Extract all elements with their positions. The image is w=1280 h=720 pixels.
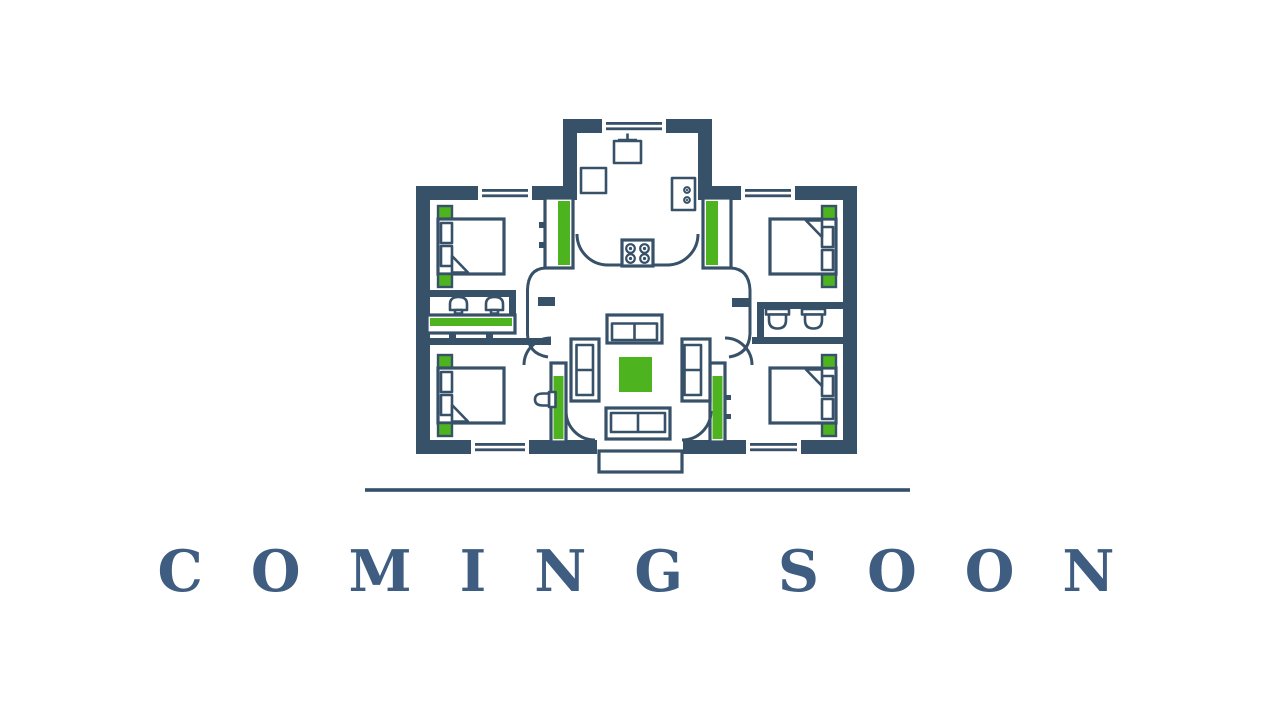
bed-bottom-left	[438, 355, 504, 436]
bed-bottom-right	[770, 355, 836, 436]
kitchen-stove	[622, 240, 653, 266]
bed-top-right	[770, 206, 836, 287]
bed-top-left	[438, 206, 504, 287]
sofa-bottom	[606, 408, 670, 439]
kitchen-sink	[614, 134, 641, 164]
bathroom-toilets	[766, 309, 825, 329]
toilet-side	[535, 392, 556, 407]
sofa-top	[607, 315, 662, 343]
coming-soon-heading: COMING SOON	[20, 543, 1280, 600]
floor-plan-graphic	[0, 0, 1280, 720]
kitchen-appliance	[672, 178, 695, 210]
armchair-right	[682, 339, 710, 401]
entrance-porch	[597, 440, 683, 472]
bathroom-sinks	[450, 297, 503, 314]
coming-soon-page: COMING SOON	[0, 0, 1280, 720]
windows	[471, 119, 801, 454]
living-room-rug	[619, 357, 652, 392]
divider-line	[365, 488, 910, 492]
kitchen-counter	[581, 168, 606, 193]
armchair-left	[571, 339, 599, 401]
